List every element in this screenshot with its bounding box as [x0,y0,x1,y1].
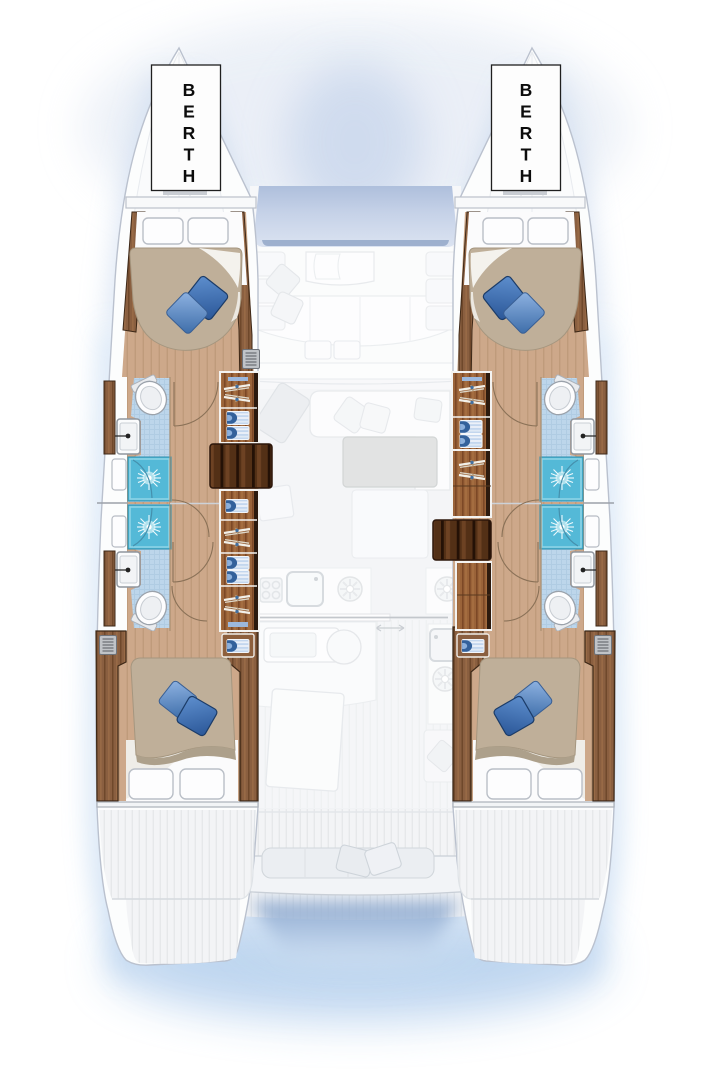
svg-text:R: R [520,123,533,143]
svg-text:H: H [520,166,533,186]
svg-text:B: B [520,80,533,100]
svg-text:E: E [183,102,195,122]
svg-text:T: T [521,145,532,165]
svg-text:B: B [183,80,196,100]
svg-text:R: R [183,123,196,143]
svg-text:T: T [184,145,195,165]
svg-text:H: H [183,166,196,186]
svg-text:E: E [520,102,532,122]
